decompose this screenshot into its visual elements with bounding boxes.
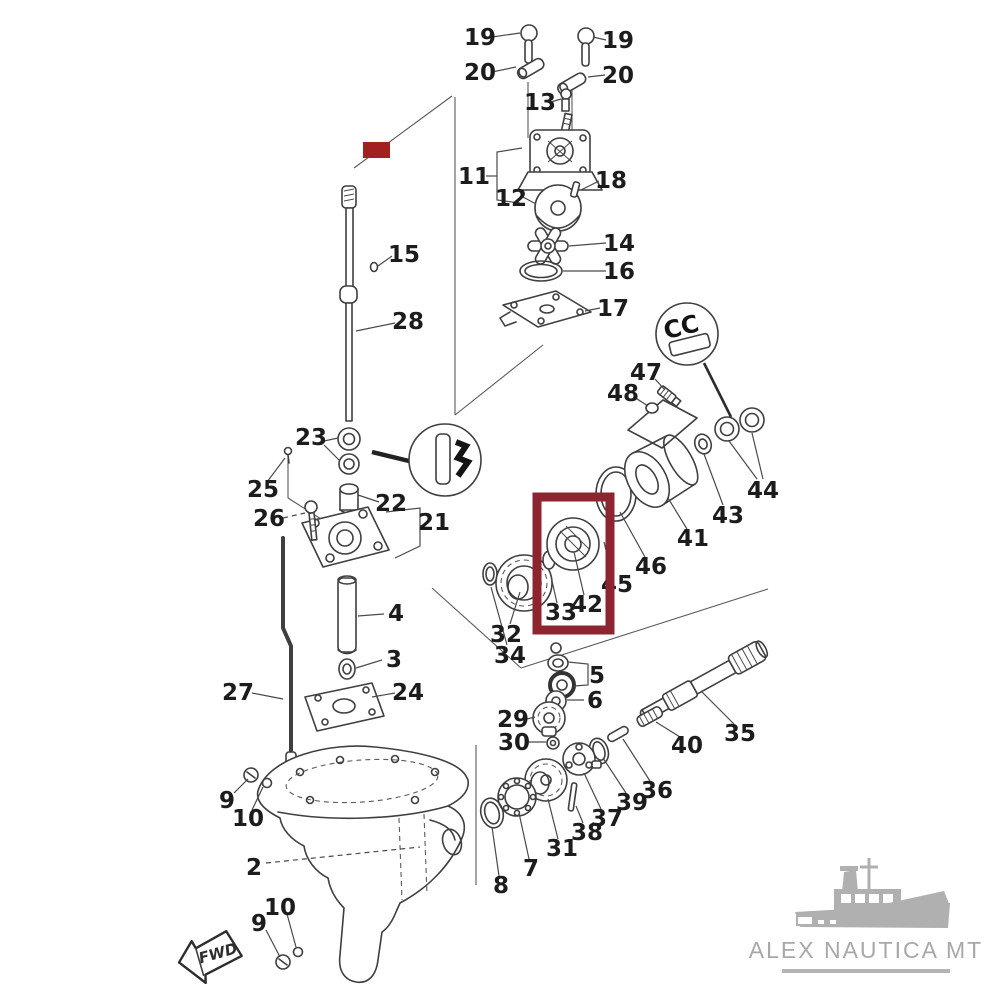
leader-line [356,660,382,668]
watermark-underline [782,969,950,973]
leader-line [584,773,601,809]
leader-line [548,799,558,839]
part-label-41: 41 [677,526,709,552]
part-label-23: 23 [295,425,327,451]
part-label-7: 7 [523,856,539,882]
leader-line [752,433,763,479]
part-label-34: 34 [494,643,526,669]
part-label-33: 33 [545,600,577,626]
leader-line [356,323,395,331]
leader-line [569,243,606,246]
part-label-20: 20 [602,63,634,89]
leader-line [492,827,499,876]
part-label-31: 31 [546,836,578,862]
leader-line [704,454,723,505]
part-bearing-group-23 [338,424,481,496]
part-label-2: 2 [246,855,262,881]
part-label-5: 5 [589,663,605,689]
part-label-43: 43 [712,503,744,529]
part-label-16: 16 [603,259,635,285]
part-plate-under-47 [628,400,697,448]
part-gearcase-2 [244,746,468,982]
leader-line [701,691,734,724]
part-label-14: 14 [603,231,635,257]
part-label-11: 11 [458,164,490,190]
part-bearing-7 [498,778,536,816]
part-pin-25 [285,448,292,464]
part-label-4: 4 [388,601,404,627]
part-label-6: 6 [587,688,603,714]
fwd-flag: FWD [174,929,246,988]
part-label-18: 18 [595,168,627,194]
part-label-25: 25 [247,477,279,503]
part-impeller-14 [500,226,591,327]
part-label-27: 27 [222,680,254,706]
part-pin-38 [568,783,577,811]
part-label-8: 8 [493,873,509,899]
leader-line [252,693,283,699]
leader-line [283,513,305,518]
part-nut-48 [646,403,658,413]
parts-diagram-page: CC [0,0,1000,1000]
part-pin-15 [371,263,378,272]
part-label-10: 10 [232,806,264,832]
part-label-10: 10 [264,895,296,921]
leader-line [358,614,384,616]
part-pinion-stack [533,643,588,749]
leader-line [668,498,687,529]
part-label-46: 46 [635,554,667,580]
part-label-28: 28 [392,309,424,335]
watermark: ALEX NAUTICA MT [749,858,983,973]
highlight-mark-shaft-top [363,142,390,158]
leader-line [729,441,757,479]
part-pump-housing-11-12 [486,130,602,231]
leader-line [234,779,248,793]
part-label-35: 35 [724,721,756,747]
leader-line [492,33,520,37]
part-label-9: 9 [251,911,267,937]
part-carrier-41 [616,429,706,515]
part-sleeve-4 [338,576,356,654]
part-label-48: 48 [607,381,639,407]
part-shift-rod-27 [283,538,296,774]
part-seals-44 [715,408,764,441]
part-label-12: 12 [495,186,527,212]
part-label-17: 17 [597,296,629,322]
part-gasket-24 [305,683,384,731]
part-plate-17 [500,291,591,327]
part-label-19: 19 [464,25,496,51]
leader-line [603,758,626,793]
part-label-22: 22 [375,491,407,517]
leader-line [620,512,645,557]
part-pin-36 [606,725,629,743]
watermark-text: ALEX NAUTICA MT [749,937,983,963]
part-carrier-group: CC [596,303,764,521]
part-label-40: 40 [671,733,703,759]
leader-line [266,930,280,957]
part-bearing-42 [547,518,599,570]
part-label-3: 3 [386,647,402,673]
part-label-19: 19 [602,28,634,54]
part-label-15: 15 [388,242,420,268]
part-seal-housing-22 [340,484,358,513]
part-label-44: 44 [747,478,779,504]
leader-line [519,813,529,859]
parts-diagram: CC [0,0,1000,1000]
part-label-20: 20 [464,60,496,86]
boat-icon [795,858,950,928]
part-label-13: 13 [524,90,556,116]
leader-line [623,739,650,781]
part-label-21: 21 [418,510,450,536]
part-bushing-3 [339,659,355,679]
part-label-26: 26 [253,506,285,532]
part-label-30: 30 [498,730,530,756]
part-clutch-group [477,743,601,830]
part-drive-shaft-28 [340,186,378,421]
part-label-24: 24 [392,680,424,706]
diagram-artwork: CC [244,25,771,982]
